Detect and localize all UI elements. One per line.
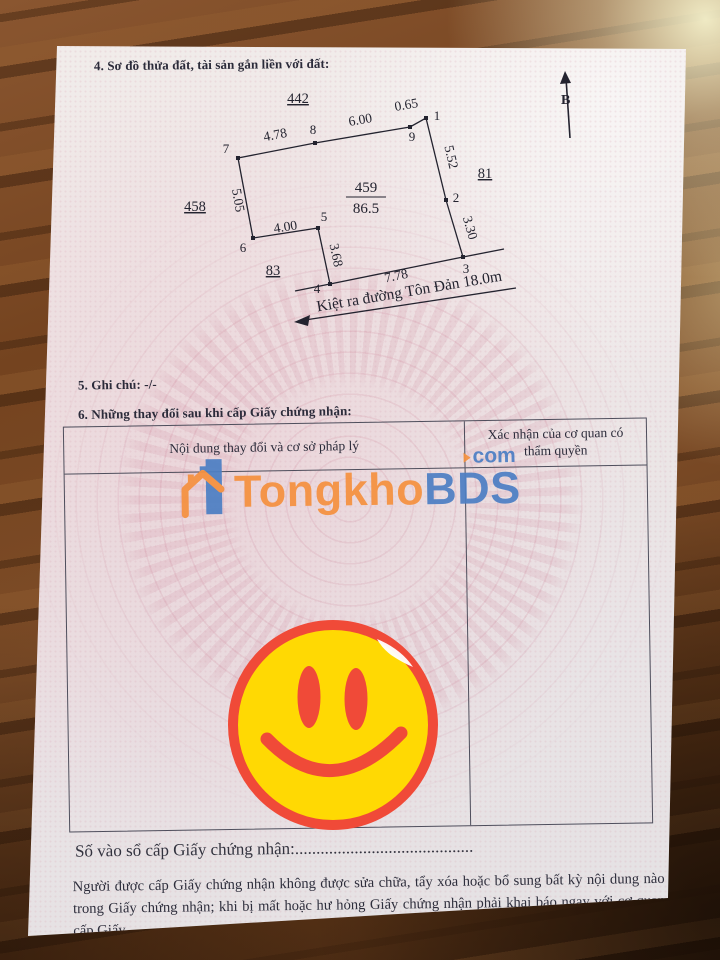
dim-4-5: 3.68 [327, 242, 347, 268]
brand-tld: com [463, 444, 516, 469]
dim-6-7: 5.05 [229, 187, 248, 213]
smiley-left-eye [298, 666, 321, 728]
vertex-7: 7 [223, 141, 230, 156]
vertex-8: 8 [310, 122, 317, 137]
photo-of-land-certificate: 4. Sơ đồ thửa đất, tài sản gắn liền với … [0, 0, 720, 960]
section5-note: 5. Ghi chú: -/- [78, 376, 157, 393]
tld-text: com [472, 444, 516, 468]
section4-title: 4. Sơ đồ thửa đất, tài sản gắn liền với … [94, 56, 330, 74]
vertex-1: 1 [434, 108, 441, 123]
dim-9-1: 0.65 [393, 95, 419, 114]
watermark-logo: TongkhoBDS com [175, 443, 566, 532]
vertex-5: 5 [321, 209, 328, 224]
parcel-outline [238, 118, 463, 284]
dim-8-9: 6.00 [347, 110, 373, 129]
vertex-2: 2 [453, 190, 460, 205]
north-arrow-icon: B [553, 70, 587, 144]
parcel-area: 86.5 [353, 201, 379, 217]
brand-part1: Tongkho [234, 463, 425, 517]
adjacent-parcel-right: 81 [478, 166, 493, 182]
dim-7-8: 4.78 [262, 125, 288, 144]
road-label: Kiệt ra đường Tôn Đản 18.0m [315, 268, 503, 316]
registry-label: Số vào sổ cấp Giấy chứng nhận: [75, 839, 295, 861]
smiley-right-eye [345, 668, 368, 730]
vertex-4: 4 [314, 281, 321, 296]
road-arrow-head [294, 315, 310, 326]
adjacent-parcel-top: 442 [287, 91, 309, 107]
registry-dots: ........................................… [295, 837, 474, 858]
parcel-diagram: 442 458 81 83 459 86.5 7 8 9 1 2 3 4 5 6… [148, 84, 540, 342]
dim-2-3: 3.30 [460, 214, 481, 241]
tld-triangle-icon [464, 453, 471, 463]
dim-5-6: 4.00 [272, 217, 298, 236]
north-label: B [561, 93, 570, 108]
dim-1-2: 5.52 [441, 144, 461, 170]
vertex-6: 6 [240, 240, 247, 255]
adjacent-parcel-bottom: 83 [266, 263, 281, 279]
smiley-sticker [225, 617, 441, 833]
dim-3-4: 7.78 [383, 266, 409, 286]
brand-part2: BDS [424, 462, 521, 514]
parcel-number: 459 [355, 180, 378, 196]
brand-text: TongkhoBDS [234, 462, 521, 518]
vertex-9: 9 [409, 129, 416, 144]
house-building-icon [176, 456, 233, 519]
adjacent-parcel-left: 458 [184, 199, 206, 215]
